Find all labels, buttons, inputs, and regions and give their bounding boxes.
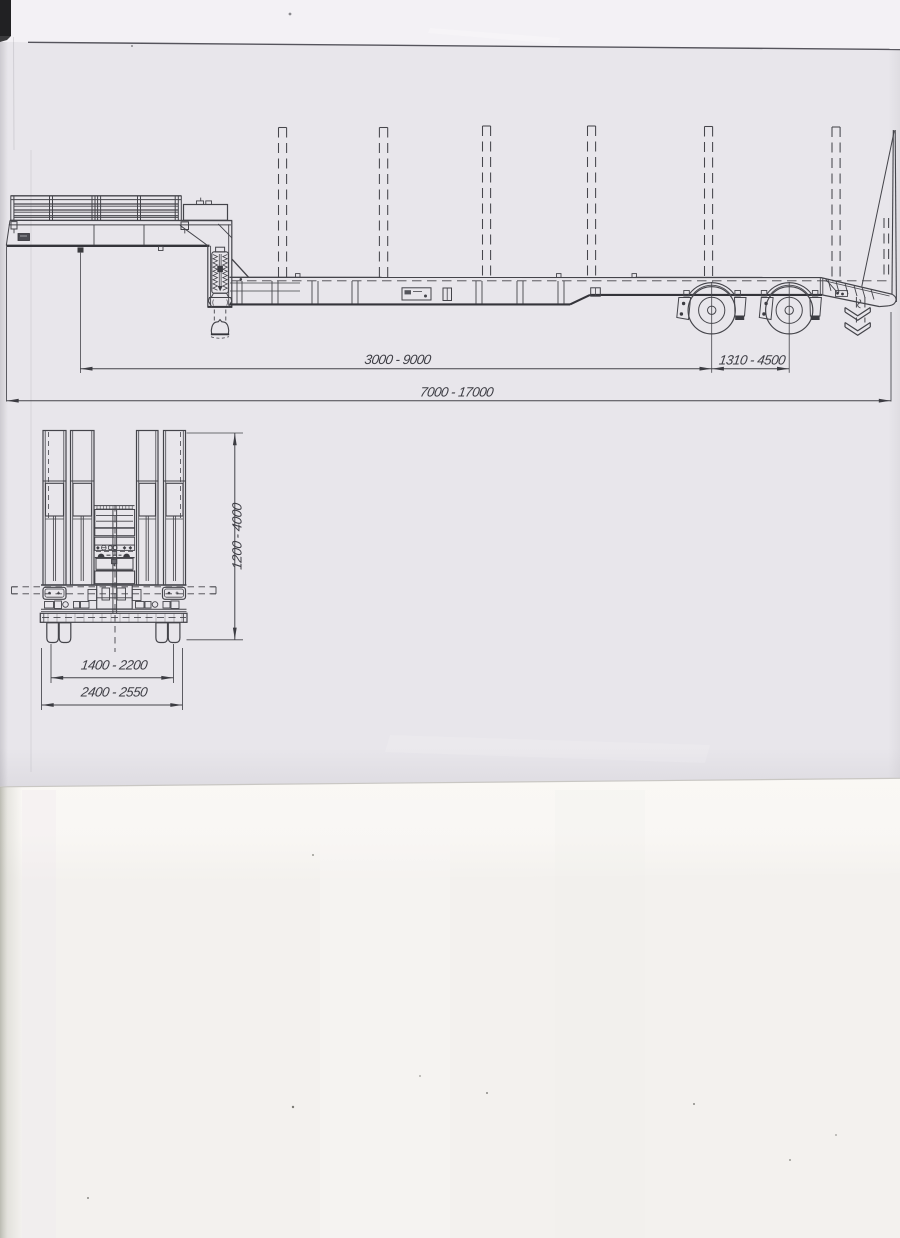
svg-text:1200 - 4000: 1200 - 4000 <box>230 501 245 570</box>
svg-text:1310 - 4500: 1310 - 4500 <box>718 353 787 368</box>
svg-text:1400 - 2200: 1400 - 2200 <box>80 658 149 673</box>
svg-text:3000 - 9000: 3000 - 9000 <box>364 352 433 367</box>
svg-text:7000 - 17000: 7000 - 17000 <box>419 385 495 400</box>
svg-text:2400 - 2550: 2400 - 2550 <box>79 685 149 700</box>
